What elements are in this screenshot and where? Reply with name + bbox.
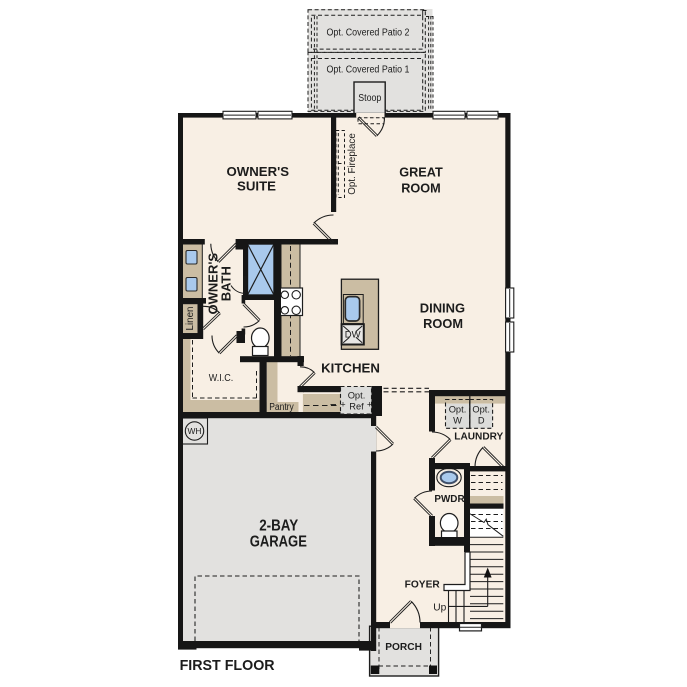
svg-text:SUITE: SUITE xyxy=(237,179,276,194)
svg-text:GREAT: GREAT xyxy=(399,165,443,180)
svg-text:KITCHEN: KITCHEN xyxy=(321,361,380,376)
svg-text:D: D xyxy=(478,416,485,426)
svg-text:Opt.: Opt. xyxy=(472,404,490,414)
svg-text:GARAGE: GARAGE xyxy=(250,534,307,551)
svg-text:FIRST FLOOR: FIRST FLOOR xyxy=(180,657,275,674)
svg-text:Pantry: Pantry xyxy=(269,402,294,413)
svg-text:PWDR: PWDR xyxy=(434,494,465,505)
svg-text:FOYER: FOYER xyxy=(405,579,441,590)
svg-text:Linen: Linen xyxy=(185,307,196,331)
svg-text:Up: Up xyxy=(433,603,446,614)
svg-text:LAUNDRY: LAUNDRY xyxy=(454,432,503,443)
svg-text:DINING: DINING xyxy=(420,302,465,316)
svg-text:WH: WH xyxy=(188,426,202,436)
svg-text:ROOM: ROOM xyxy=(423,317,463,331)
svg-text:+: + xyxy=(367,400,372,410)
svg-text:DW: DW xyxy=(345,330,361,341)
svg-text:PORCH: PORCH xyxy=(385,642,422,653)
svg-text:BATH: BATH xyxy=(219,266,234,301)
svg-text:Opt.: Opt. xyxy=(348,391,366,401)
svg-text:2-BAY: 2-BAY xyxy=(259,518,298,535)
svg-text:W: W xyxy=(453,416,462,426)
svg-text:Opt.: Opt. xyxy=(449,404,467,414)
svg-text:Opt. Fireplace: Opt. Fireplace xyxy=(347,133,358,195)
svg-text:Opt. Covered Patio 2: Opt. Covered Patio 2 xyxy=(327,28,410,39)
svg-text:ROOM: ROOM xyxy=(401,181,441,196)
svg-text:Opt. Covered Patio 1: Opt. Covered Patio 1 xyxy=(327,65,410,76)
svg-text:Stoop: Stoop xyxy=(358,93,381,104)
svg-text:Ref: Ref xyxy=(349,402,364,412)
svg-text:+: + xyxy=(340,400,345,410)
svg-text:W.I.C.: W.I.C. xyxy=(209,373,234,384)
svg-text:OWNER'S: OWNER'S xyxy=(227,164,290,179)
